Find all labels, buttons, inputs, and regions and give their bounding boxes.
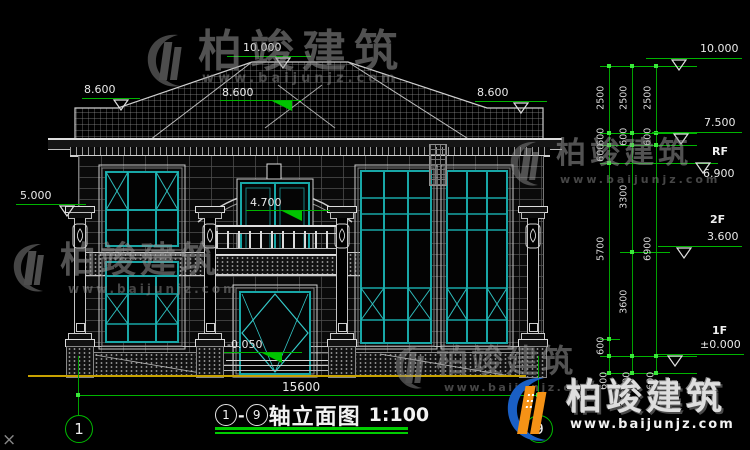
elev-triangle-icon [675, 247, 693, 259]
elev-roof-mid: 8.600 [222, 87, 254, 98]
dim-label: 2500 [596, 76, 606, 120]
shield-ornament-icon [334, 223, 350, 249]
elev-marker-line [652, 132, 742, 133]
elev-triangle-icon [666, 355, 684, 367]
elev-right-7500: 7.500 [704, 117, 736, 128]
title-dash: - [238, 406, 245, 425]
title-axis-to: 9 [246, 404, 268, 426]
elev-triangle-icon [670, 59, 688, 71]
dim-tick [76, 393, 80, 397]
dim-label: 5700 [596, 227, 606, 271]
elev-wall-left: 5.000 [20, 190, 52, 201]
elev-marker-line [658, 246, 742, 247]
company-logo-url: www.baijunjz.com [570, 418, 735, 431]
dim-label: 2500 [643, 76, 653, 120]
dim-tick [607, 131, 611, 135]
dim-tick [630, 64, 634, 68]
watermark-logo-icon [140, 30, 192, 88]
floor-label-1f: 1F [712, 325, 727, 336]
dim-tick [607, 354, 611, 358]
dim-tick [607, 64, 611, 68]
elev-slant-arrow-icon [268, 210, 304, 222]
watermark-url: www.baijunjz.com [202, 72, 399, 85]
dim-label: 2500 [619, 76, 629, 120]
corner-x-mark: × [2, 430, 16, 450]
shield-ornament-icon [525, 223, 541, 249]
cad-elevation-canvas: 2500 2500 2500 600 600 600 600 3300 6900… [0, 0, 750, 450]
company-logo-icon [500, 372, 562, 446]
dim-tick [630, 250, 634, 254]
dim-tick [630, 131, 634, 135]
pilaster-pedestal [196, 346, 224, 378]
pilaster-pedestal [328, 346, 356, 378]
elev-slant-arrow-icon [248, 352, 284, 364]
watermark-url: www.baijunjz.com [560, 174, 720, 185]
dim-chain-line-c [656, 66, 657, 373]
watermark-brand: 柏竣建筑 [556, 139, 692, 169]
dim-tick [630, 354, 634, 358]
axis-bubble-1: 1 [65, 415, 93, 443]
elev-right-0000: ±0.000 [700, 339, 741, 350]
elev-roof-right: 8.600 [477, 87, 509, 98]
floor-label-rf: RF [712, 146, 728, 157]
elev-marker-line [646, 58, 742, 59]
watermark-url: www.baijunjz.com [68, 283, 239, 295]
overall-width-dim: 15600 [282, 381, 320, 393]
elev-slant-arrow-icon [258, 100, 294, 112]
elev-balcony: 4.700 [250, 197, 282, 208]
step-line-2 [222, 365, 334, 366]
title-underline-2 [215, 432, 408, 434]
dim-label: 3600 [619, 280, 629, 324]
elev-porch: -0.050 [227, 339, 262, 350]
overall-dim-line [78, 395, 538, 396]
elev-right-3600: 3.600 [707, 231, 739, 242]
window-tall-2 [440, 164, 514, 350]
balustrade-balusters [216, 231, 334, 248]
title-underline-1 [215, 427, 408, 430]
dim-label: 6900 [643, 227, 653, 271]
watermark-logo-icon [504, 138, 548, 188]
elev-right-10000: 10.000 [700, 43, 739, 54]
pilaster-square-detail [206, 323, 215, 332]
elev-triangle-icon [58, 205, 76, 217]
watermark-logo-icon [390, 342, 432, 392]
pilaster-square-detail [338, 323, 347, 332]
step-line-3 [218, 370, 338, 371]
balcony-slab [210, 255, 338, 275]
pilaster-square-detail [529, 323, 538, 332]
elev-marker-line [82, 98, 140, 99]
title-axis-from: 1 [215, 404, 237, 426]
window-tall-1 [354, 164, 438, 350]
elev-triangle-icon [512, 102, 530, 114]
pilaster-square-detail [76, 323, 85, 332]
floor-label-2f: 2F [710, 214, 725, 225]
dim-tick [607, 337, 611, 341]
elev-roof-left: 8.600 [84, 84, 116, 95]
dim-chain-line-b [632, 66, 633, 373]
watermark-logo-icon [6, 240, 54, 295]
vent-grille-detail [429, 144, 447, 186]
pilaster-pedestal [66, 346, 94, 378]
elev-marker-line [475, 101, 547, 102]
company-logo-brand: 柏竣建筑 [566, 380, 726, 416]
pilaster-3 [327, 206, 357, 376]
dim-chain-line-a [609, 66, 610, 373]
watermark-brand: 柏竣建筑 [198, 30, 406, 74]
axis-line-1 [78, 356, 79, 415]
dim-tick [654, 64, 658, 68]
elev-triangle-icon [112, 99, 130, 111]
title-scale: 1:100 [369, 404, 429, 426]
watermark-brand: 柏竣建筑 [60, 243, 220, 279]
